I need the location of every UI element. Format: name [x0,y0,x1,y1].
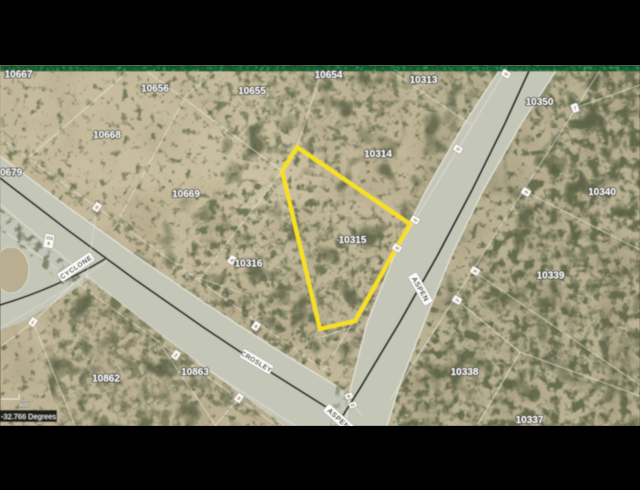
svg-text:10656: 10656 [141,84,169,95]
svg-text:10654: 10654 [315,70,343,81]
svg-text:10316: 10316 [235,259,263,270]
svg-text:10669: 10669 [172,189,200,200]
svg-text:10655: 10655 [238,86,266,97]
svg-text:10668: 10668 [93,130,121,141]
svg-text:10667: 10667 [5,70,33,81]
svg-text:10314: 10314 [364,149,392,160]
svg-text:10313: 10313 [410,75,438,86]
svg-text:-32.766 Degrees: -32.766 Degrees [1,412,56,421]
svg-text:10350: 10350 [526,97,554,108]
svg-text:10337: 10337 [516,415,544,426]
svg-text:400: 400 [19,402,30,409]
svg-text:10862: 10862 [92,374,120,385]
svg-text:10339: 10339 [537,271,565,282]
svg-text:10863: 10863 [181,367,209,378]
svg-text:10338: 10338 [451,367,479,378]
svg-text:0679: 0679 [0,168,23,179]
svg-text:10340: 10340 [588,187,616,198]
svg-text:10315: 10315 [339,235,367,246]
